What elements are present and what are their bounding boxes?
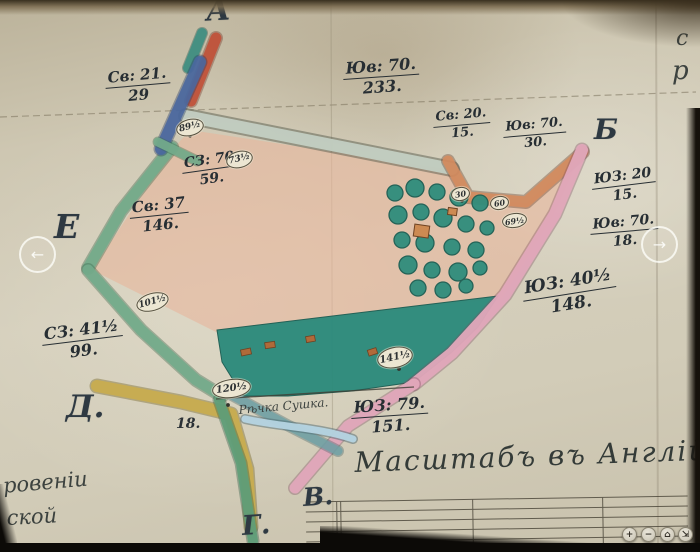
scale-bar-grid [306, 496, 689, 551]
marginalia-right-line2: р [672, 56, 689, 86]
corner-label-b: Б [594, 116, 618, 144]
bearing-label: Юв: 70. 30. [502, 115, 568, 153]
left-arrow-icon: ← [31, 245, 44, 264]
bearing-label: Св: 20. 15. [432, 106, 491, 144]
corner-label-a: А [205, 0, 231, 27]
fullscreen-icon: ⇲ [682, 530, 690, 540]
bearing-label: Св: 37 146. [128, 194, 191, 238]
loose-number: 18. [176, 416, 200, 432]
plus-icon: + [626, 530, 634, 540]
fullscreen-button[interactable]: ⇲ [678, 527, 693, 542]
right-arrow-icon: → [653, 235, 666, 254]
map-viewer-canvas[interactable]: А Б Е Д. В. Г. Св: 21. 29 Юв: 70. 233. С… [0, 0, 700, 552]
bearing-label: Св: 21. 29 [104, 64, 172, 107]
bearing-label: ЮЗ: 79. 151. [350, 394, 430, 439]
marginalia-left-line2: ской [6, 503, 58, 530]
corner-label-d: Д. [66, 392, 104, 423]
bearing-label: Юв: 70. 233. [342, 55, 421, 100]
corner-label-e: Е [54, 210, 79, 243]
home-view-button[interactable]: ⌂ [660, 527, 675, 542]
prev-page-button[interactable]: ← [19, 236, 56, 273]
minus-icon: − [645, 530, 653, 540]
marginalia-right-line1: с [676, 26, 688, 51]
zoom-out-button[interactable]: − [641, 527, 656, 542]
next-page-button[interactable]: → [641, 226, 678, 263]
corner-label-g: Г. [241, 511, 271, 540]
corner-label-v: В. [302, 483, 334, 510]
zoom-in-button[interactable]: + [622, 527, 637, 542]
home-icon: ⌂ [664, 530, 670, 540]
